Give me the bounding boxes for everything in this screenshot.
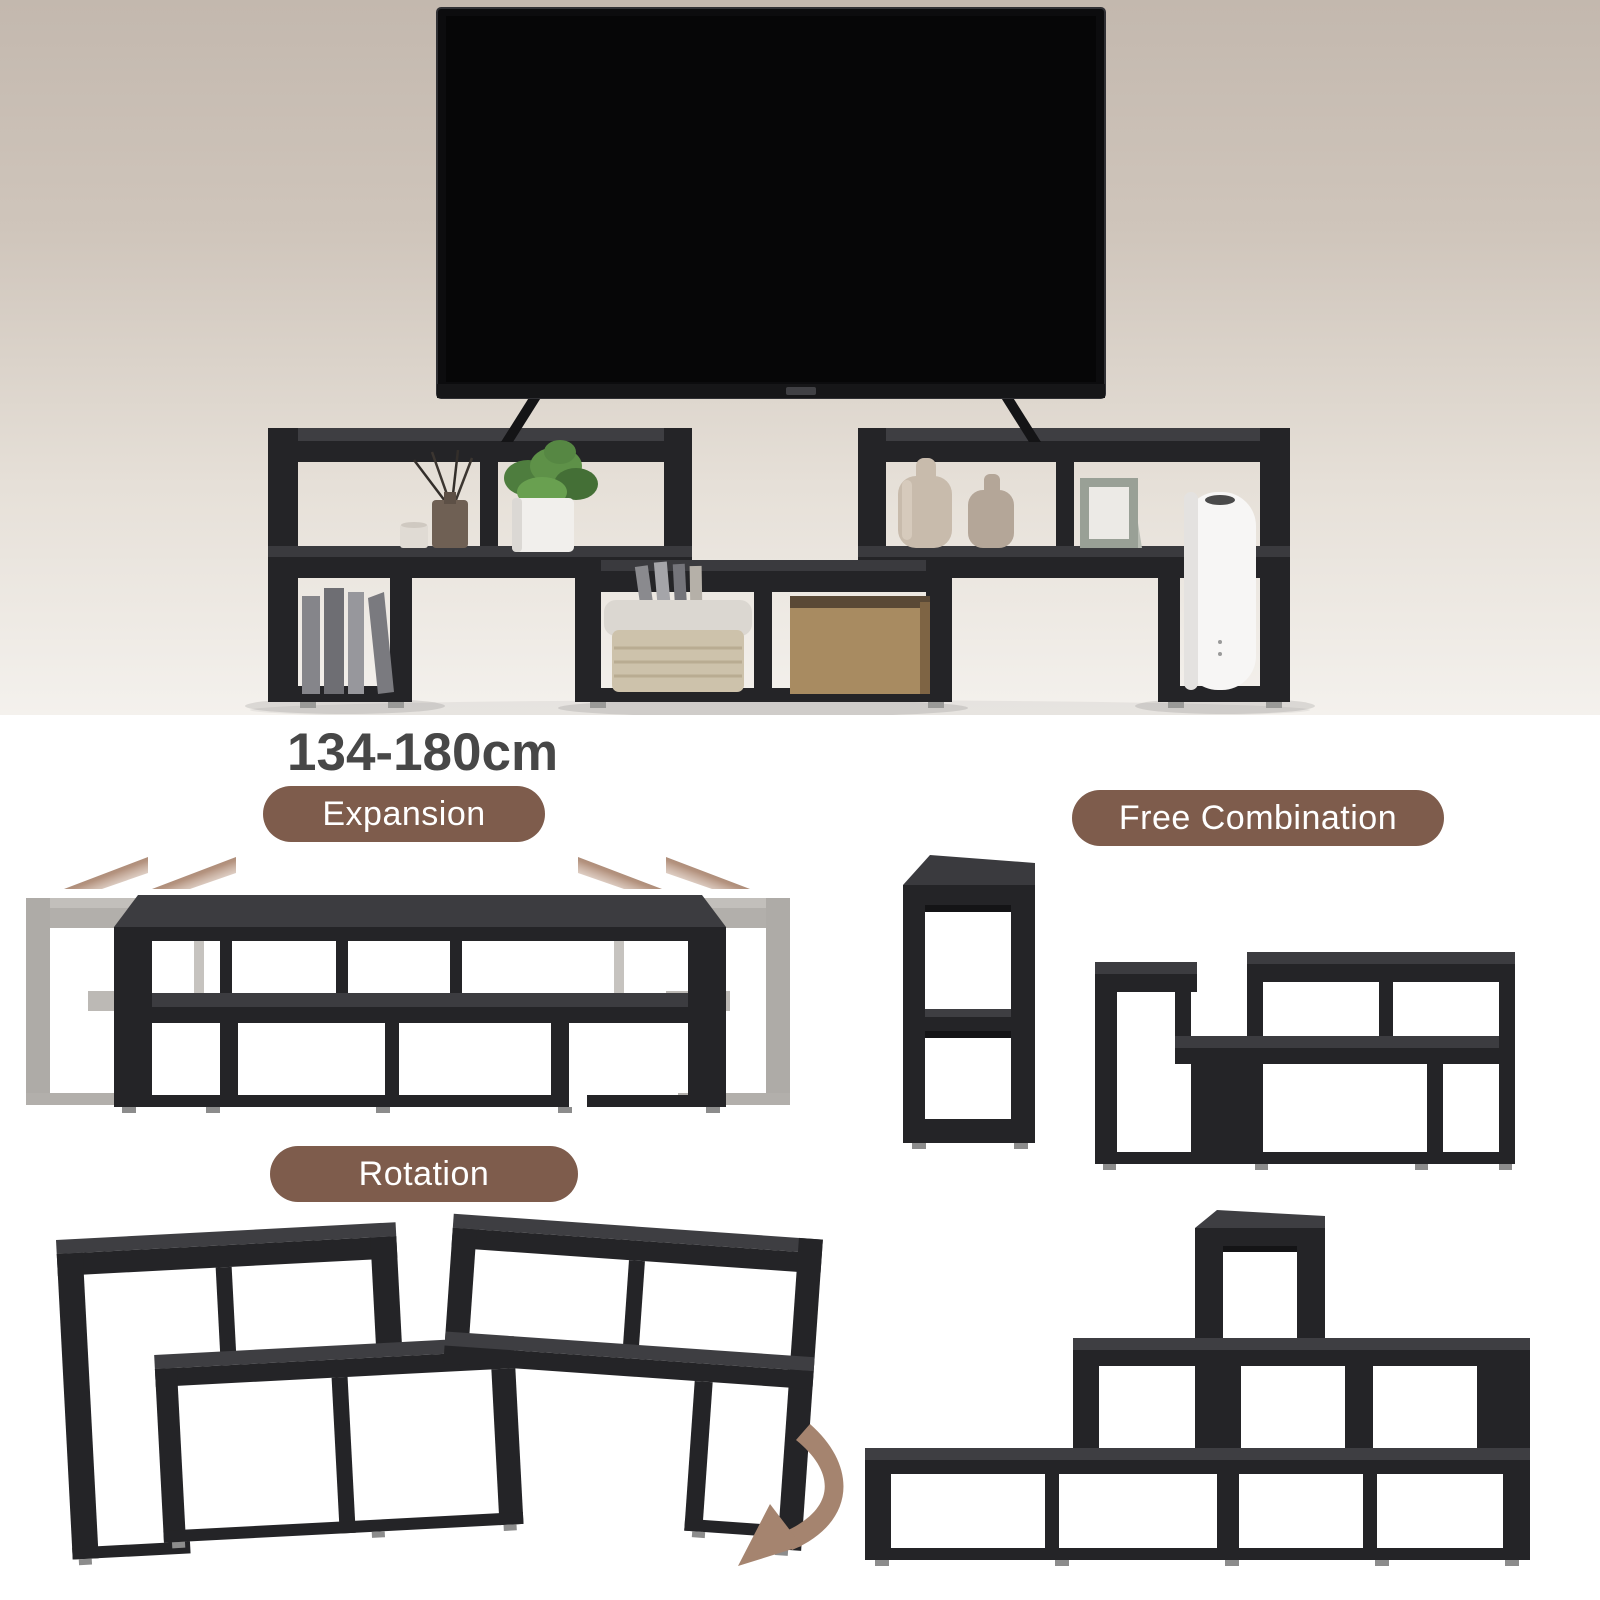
air-purifier — [1184, 492, 1256, 690]
s-combo-illustration — [1075, 928, 1535, 1170]
expansion-arrows-left — [64, 857, 236, 889]
tall-unit-illustration — [888, 843, 1043, 1155]
expansion-black-assembly — [114, 895, 726, 1113]
product-infographic: 134-180cm Expansion Free Combination Rot… — [0, 0, 1600, 1600]
tv-and-stand-illustration — [0, 0, 1600, 715]
books — [302, 588, 394, 694]
rotation-diagram — [48, 1198, 860, 1578]
candle-jar — [400, 522, 428, 548]
rotation-illustration — [48, 1198, 860, 1573]
staircase-combination-diagram — [855, 1180, 1540, 1575]
staircase-shapes — [865, 1210, 1530, 1566]
badge-expansion: Expansion — [263, 786, 545, 842]
free-combination-tall-unit — [888, 843, 1043, 1160]
size-range-label: 134-180cm — [287, 722, 558, 783]
wooden-box — [790, 596, 930, 694]
storage-basket — [604, 600, 752, 692]
flat-screen-tv — [437, 8, 1105, 398]
tv-screen — [446, 16, 1096, 382]
free-combination-s-unit — [1075, 928, 1535, 1175]
small-vase — [968, 474, 1014, 548]
badge-free-combination: Free Combination — [1072, 790, 1444, 846]
rotation-right-unit — [432, 1214, 823, 1557]
expansion-arrows-right — [578, 857, 750, 889]
hero-product-scene — [0, 0, 1600, 715]
expansion-diagram — [18, 843, 798, 1133]
staircase-illustration — [855, 1180, 1540, 1570]
tv-logo — [786, 387, 816, 395]
badge-rotation: Rotation — [270, 1146, 578, 1202]
s-combo-shapes — [1095, 952, 1515, 1170]
expansion-illustration — [18, 843, 798, 1128]
photo-frame — [1080, 478, 1142, 548]
tall-vase — [898, 458, 952, 548]
